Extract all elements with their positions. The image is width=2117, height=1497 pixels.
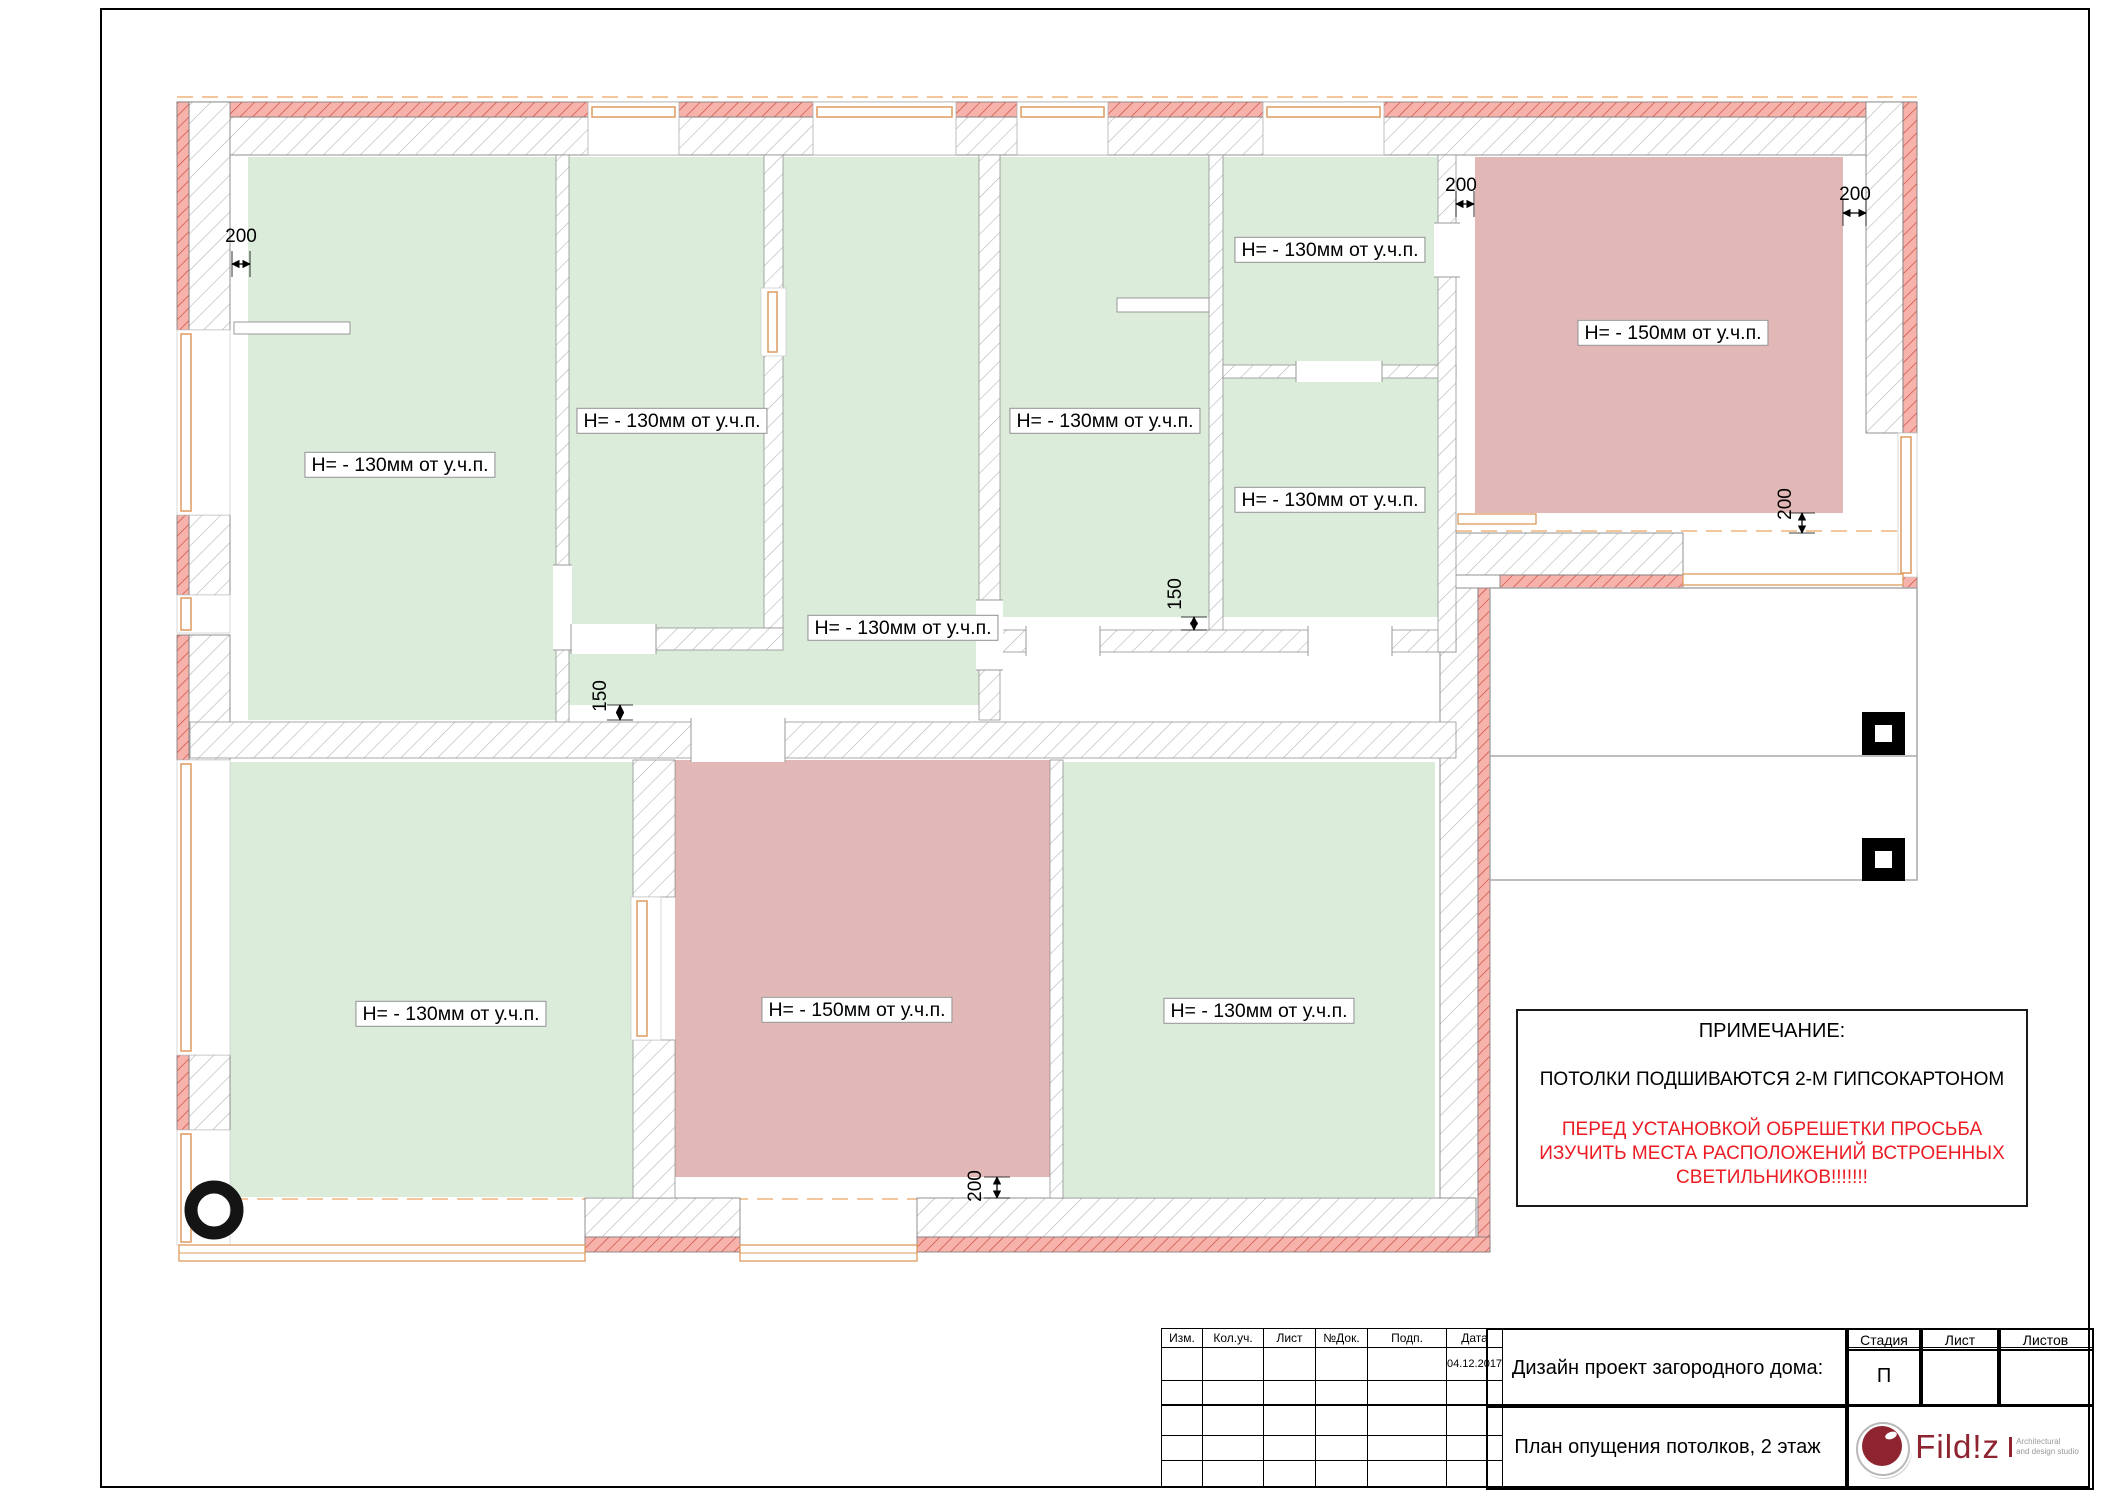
room-label-top-second: Н= - 130мм от у.ч.п. <box>576 408 767 434</box>
col-podp: Подп. <box>1368 1329 1447 1348</box>
note-line: ПОТОЛКИ ПОДШИВАЮТСЯ 2-М ГИПСОКАРТОНОМ <box>1518 1069 2026 1091</box>
col-list: Лист <box>1264 1329 1316 1348</box>
sheets-value <box>1997 1347 2094 1407</box>
room-label-right-small-upper: Н= - 130мм от у.ч.п. <box>1234 237 1425 263</box>
note-title: ПРИМЕЧАНИЕ: <box>1518 1020 2026 1043</box>
logo-tagline: Architectural and design studio <box>2009 1437 2079 1457</box>
note-warning: ПЕРЕД УСТАНОВКОЙ ОБРЕШЕТКИ ПРОСЬБА ИЗУЧИ… <box>1518 1118 2026 1190</box>
dim-200-right: 200 <box>1775 488 1797 520</box>
dim-200-bottom: 200 <box>965 1170 987 1202</box>
sheet-value <box>1919 1347 2001 1407</box>
room-label-top-right-pink: Н= - 150мм от у.ч.п. <box>1577 320 1768 346</box>
dim-200-top-middle: 200 <box>1445 175 1477 197</box>
note-warning-line2: ИЗУЧИТЬ МЕСТА РАСПОЛОЖЕНИЙ ВСТРОЕННЫХ <box>1518 1142 2026 1166</box>
logo-circle-icon <box>1860 1424 1906 1470</box>
title-block: Изм. Кол.уч. Лист №Док. Подп. Дата 04.12… <box>1161 1328 2090 1486</box>
logo-name: Fild!z <box>1915 1428 2000 1466</box>
col-ndok: №Док. <box>1316 1329 1368 1348</box>
note-warning-line3: СВЕТИЛЬНИКОВ!!!!!!! <box>1518 1166 2026 1190</box>
room-label-bottom-left: Н= - 130мм от у.ч.п. <box>355 1001 546 1027</box>
column-markers <box>1862 712 1905 881</box>
company-logo: Fild!z Architectural and design studio <box>1860 1424 2079 1470</box>
drawing-title: План опущения потолков, 2 этаж <box>1486 1404 1849 1490</box>
dim-200-top-left: 200 <box>225 226 257 248</box>
col-izm: Изм. <box>1162 1329 1203 1348</box>
logo-tagline-line1: Architectural <box>2016 1437 2079 1447</box>
logo-tagline-line2: and design studio <box>2016 1447 2079 1457</box>
terrace <box>1490 588 1917 881</box>
room-label-bottom-right: Н= - 130мм от у.ч.п. <box>1163 998 1354 1024</box>
drawing-sheet: Н= - 130мм от у.ч.п. Н= - 130мм от у.ч.п… <box>0 0 2117 1497</box>
room-label-top-left: Н= - 130мм от у.ч.п. <box>304 452 495 478</box>
floor-plan-drawing <box>0 0 2117 1497</box>
dim-150-right: 150 <box>1165 578 1187 610</box>
note-block: ПРИМЕЧАНИЕ: ПОТОЛКИ ПОДШИВАЮТСЯ 2-М ГИПС… <box>1516 1009 2028 1207</box>
col-koluch: Кол.уч. <box>1203 1329 1264 1348</box>
logo-cell: Fild!z Architectural and design studio <box>1845 1404 2094 1490</box>
room-label-center-right: Н= - 130мм от у.ч.п. <box>1009 408 1200 434</box>
room-label-bottom-center: Н= - 150мм от у.ч.п. <box>761 997 952 1023</box>
dim-200-top-right: 200 <box>1839 184 1871 206</box>
project-title: Дизайн проект загородного дома: <box>1486 1328 1849 1408</box>
room-label-central: Н= - 130мм от у.ч.п. <box>807 615 998 641</box>
dim-150-left: 150 <box>590 680 612 712</box>
stage-value: П <box>1845 1347 1923 1407</box>
revision-table: Изм. Кол.уч. Лист №Док. Подп. Дата 04.12… <box>1161 1328 1503 1487</box>
note-warning-line1: ПЕРЕД УСТАНОВКОЙ ОБРЕШЕТКИ ПРОСЬБА <box>1518 1118 2026 1142</box>
room-label-right-small-lower: Н= - 130мм от у.ч.п. <box>1234 487 1425 513</box>
